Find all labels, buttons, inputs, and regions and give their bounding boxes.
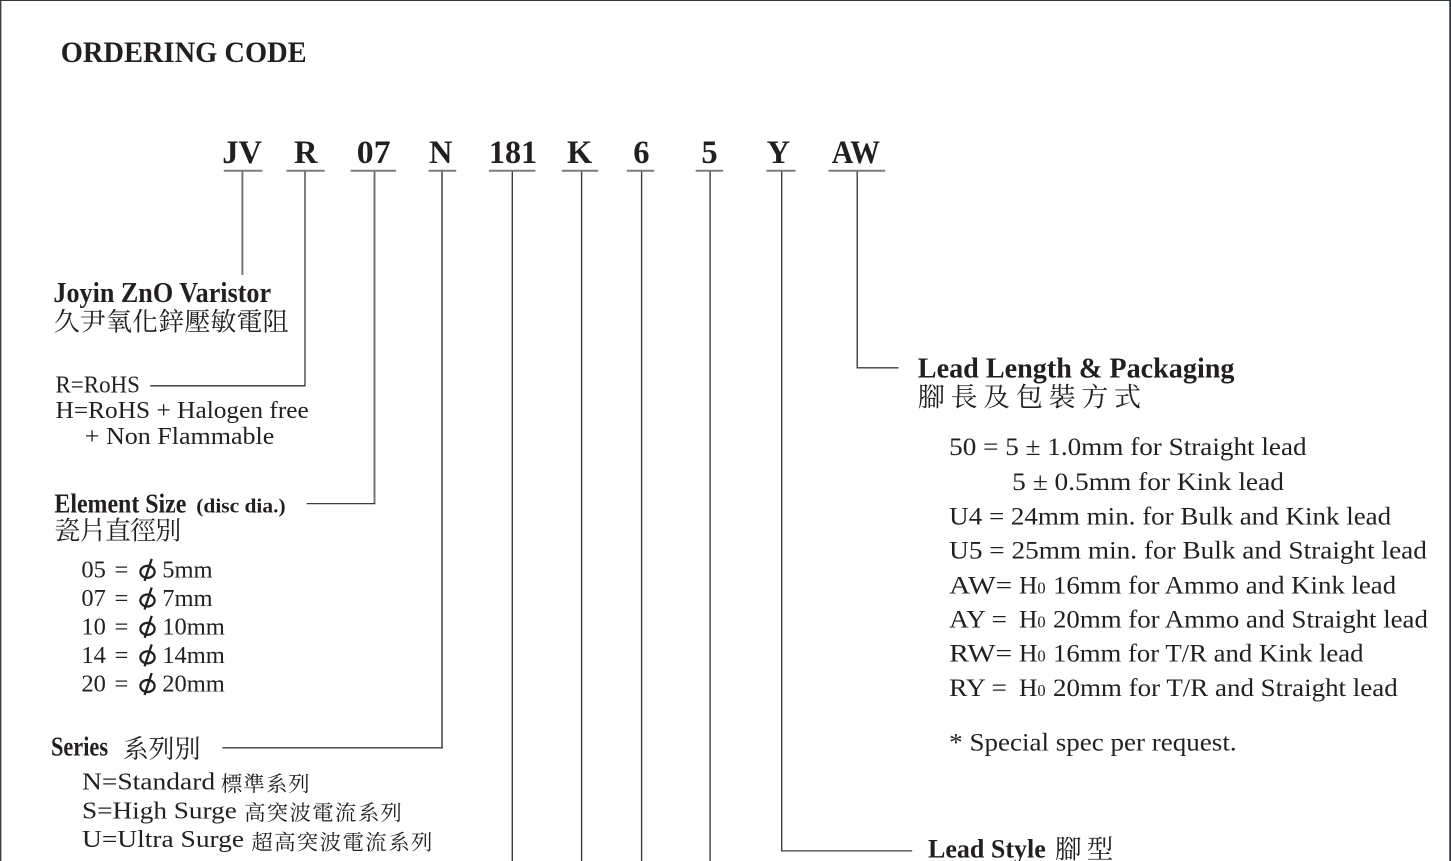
svg-text:R=RoHS: R=RoHS: [56, 371, 140, 398]
svg-text:14: 14: [81, 642, 106, 669]
svg-text:=: =: [115, 585, 129, 612]
svg-text:10mm: 10mm: [162, 614, 225, 641]
svg-text:Y: Y: [767, 135, 790, 171]
svg-text:=: =: [115, 671, 129, 698]
svg-text:AY =: AY =: [949, 604, 1007, 633]
svg-text:14mm: 14mm: [162, 642, 225, 669]
svg-text:S=High Surge: S=High Surge: [82, 797, 237, 824]
svg-text:AW=: AW=: [949, 570, 1012, 599]
svg-text:Lead Length & Packaging: Lead Length & Packaging: [918, 354, 1235, 385]
svg-text:N: N: [429, 135, 453, 171]
svg-text:Element Size: Element Size: [54, 487, 186, 518]
svg-text:Joyin ZnO Varistor: Joyin ZnO Varistor: [53, 278, 271, 309]
svg-text:U=Ultra Surge: U=Ultra Surge: [82, 826, 244, 853]
svg-text:R: R: [294, 135, 318, 171]
svg-text:07: 07: [357, 135, 391, 171]
svg-text:N=Standard: N=Standard: [82, 768, 215, 795]
svg-text:05: 05: [81, 557, 106, 584]
svg-text:ORDERING CODE: ORDERING CODE: [61, 37, 307, 69]
svg-text:=: =: [115, 642, 129, 669]
svg-text:RW=: RW=: [949, 639, 1012, 668]
svg-text:AW: AW: [832, 135, 880, 171]
svg-text:10: 10: [81, 614, 106, 641]
svg-text:50 = 5 ± 1.0mm for Straight le: 50 = 5 ± 1.0mm for Straight lead: [949, 432, 1307, 461]
svg-text:H=RoHS + Halogen free: H=RoHS + Halogen free: [56, 397, 309, 424]
svg-text:U4 = 24mm min. for Bulk and Ki: U4 = 24mm min. for Bulk and Kink lead: [949, 501, 1391, 530]
svg-text:7mm: 7mm: [162, 585, 212, 612]
svg-text:+ Non Flammable: + Non Flammable: [85, 423, 275, 450]
svg-text:Series: Series: [51, 732, 108, 763]
svg-text:=: =: [115, 557, 129, 584]
svg-text:6: 6: [633, 135, 649, 171]
svg-text:* Special spec per request.: * Special spec per request.: [949, 728, 1236, 757]
svg-text:RY =: RY =: [949, 673, 1007, 702]
svg-text:U5 = 25mm min. for Bulk and St: U5 = 25mm min. for Bulk and Straight lea…: [949, 536, 1427, 565]
svg-text:5: 5: [701, 135, 717, 171]
svg-text:Lead Style: Lead Style: [928, 834, 1046, 861]
svg-text:JV: JV: [222, 135, 262, 171]
svg-text:16mm for T/R and Kink lead: 16mm for T/R and Kink lead: [1053, 639, 1364, 668]
svg-text:20mm for Ammo and Straight lea: 20mm for Ammo and Straight lead: [1053, 604, 1428, 633]
svg-text:=: =: [115, 614, 129, 641]
svg-text:5mm: 5mm: [162, 557, 212, 584]
svg-text:(disc dia.): (disc dia.): [196, 495, 285, 517]
svg-text:181: 181: [489, 135, 537, 171]
svg-text:20: 20: [81, 671, 106, 698]
svg-text:20mm: 20mm: [162, 671, 225, 698]
svg-text:20mm for T/R and Straight lead: 20mm for T/R and Straight lead: [1053, 673, 1398, 702]
svg-text:07: 07: [81, 585, 106, 612]
svg-text:5 ± 0.5mm for Kink lead: 5 ± 0.5mm for Kink lead: [1012, 467, 1284, 496]
svg-text:K: K: [567, 135, 593, 171]
svg-text:16mm for Ammo and Kink lead: 16mm for Ammo and Kink lead: [1053, 570, 1396, 599]
